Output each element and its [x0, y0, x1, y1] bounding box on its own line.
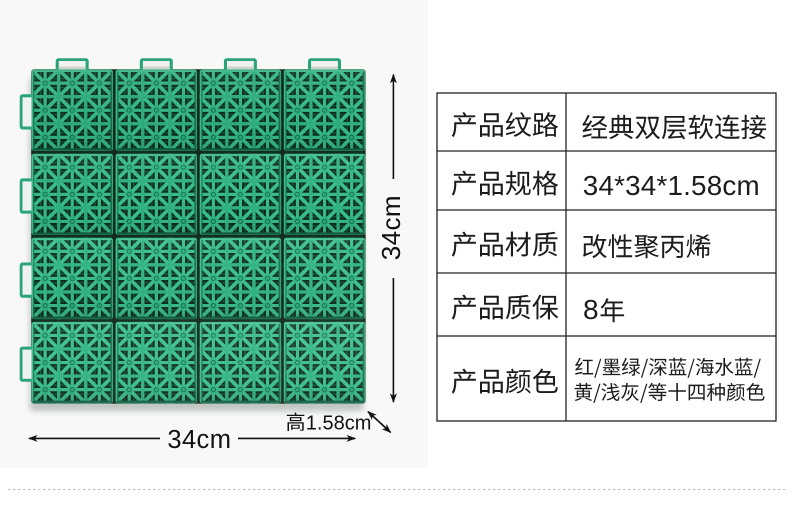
- svg-text:34*34*1.58cm: 34*34*1.58cm: [583, 170, 760, 201]
- svg-text:34cm: 34cm: [376, 195, 406, 260]
- svg-text:8: 8: [583, 294, 599, 325]
- svg-text:34cm: 34cm: [167, 426, 231, 454]
- svg-text:1.58cm: 1.58cm: [306, 412, 372, 434]
